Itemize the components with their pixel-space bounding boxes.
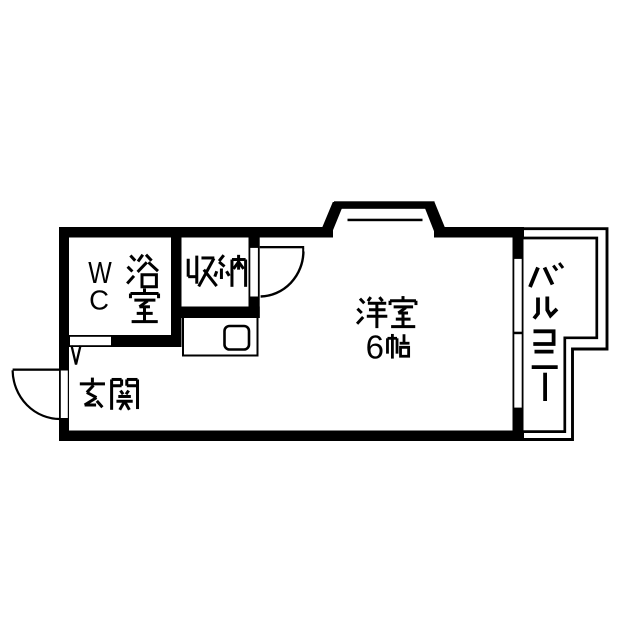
svg-text:C: C <box>89 285 109 316</box>
svg-text:6: 6 <box>366 329 384 366</box>
